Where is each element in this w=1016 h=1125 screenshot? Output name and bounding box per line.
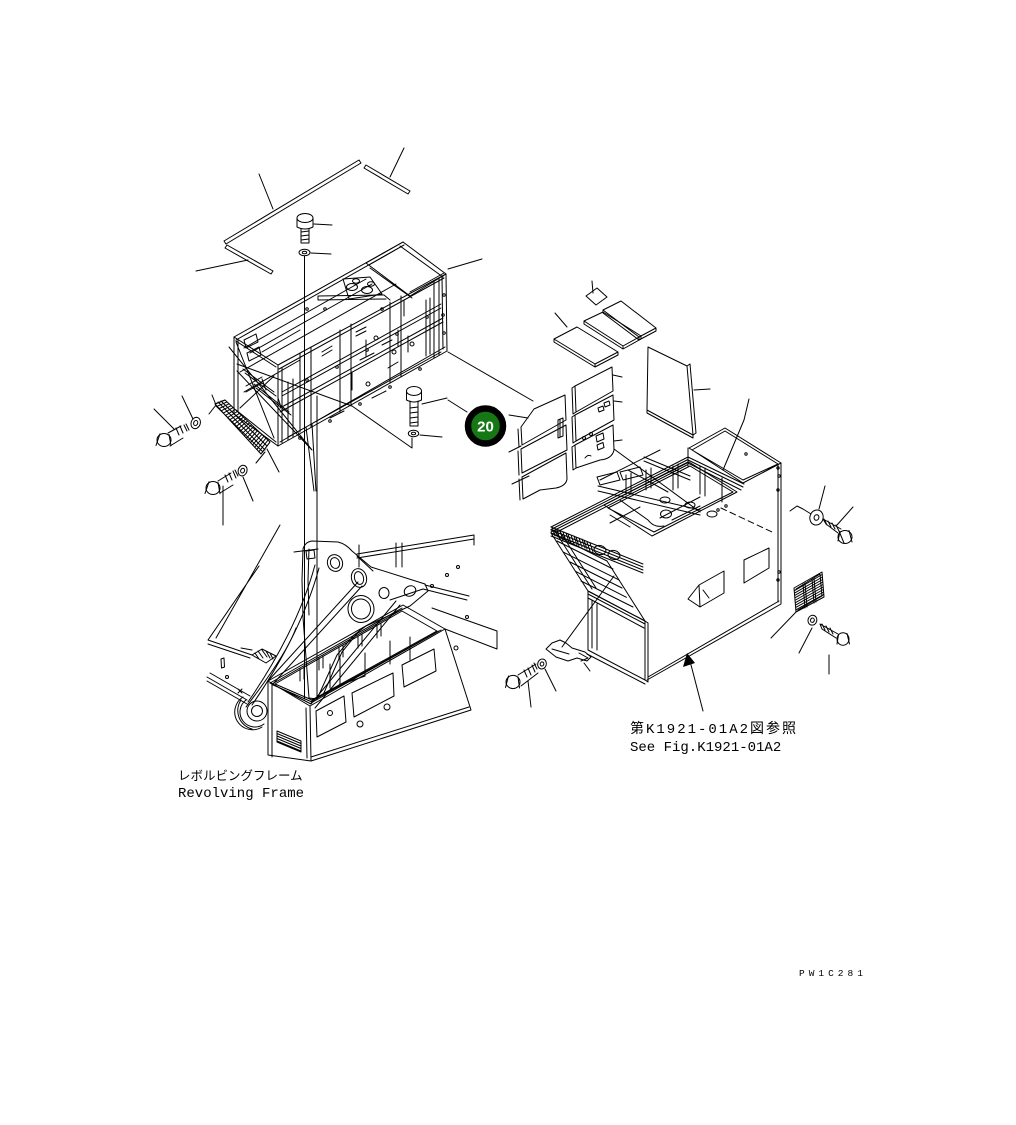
svg-text:PW1C281: PW1C281 [799,968,867,979]
svg-text:See Fig.K1921-01A2: See Fig.K1921-01A2 [630,740,781,756]
svg-text:第K1921-01A2図参照: 第K1921-01A2図参照 [630,720,798,738]
svg-text:20: 20 [477,419,494,436]
svg-text:レボルビングフレーム: レボルビングフレーム [178,769,303,783]
svg-text:Revolving Frame: Revolving Frame [178,786,304,802]
